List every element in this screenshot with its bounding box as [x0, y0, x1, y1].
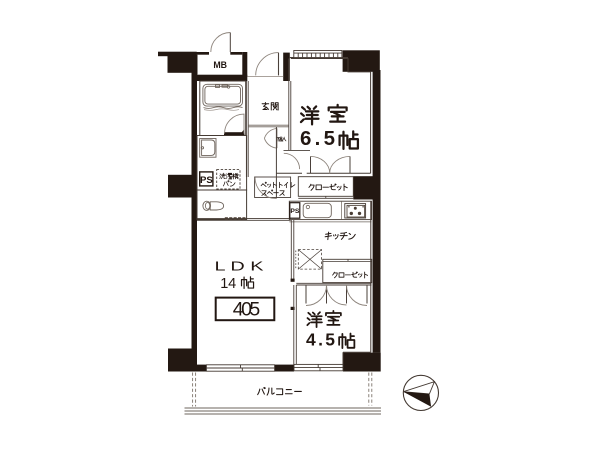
svg-text:14: 14: [220, 276, 236, 292]
svg-text:4.5: 4.5: [306, 330, 335, 350]
svg-text:405: 405: [233, 299, 261, 321]
svg-text:L D K: L D K: [215, 259, 265, 274]
svg-text:6.5: 6.5: [300, 127, 335, 150]
svg-text:PS: PS: [200, 175, 213, 186]
svg-text:PS: PS: [290, 208, 300, 215]
svg-text:MB: MB: [213, 60, 227, 70]
